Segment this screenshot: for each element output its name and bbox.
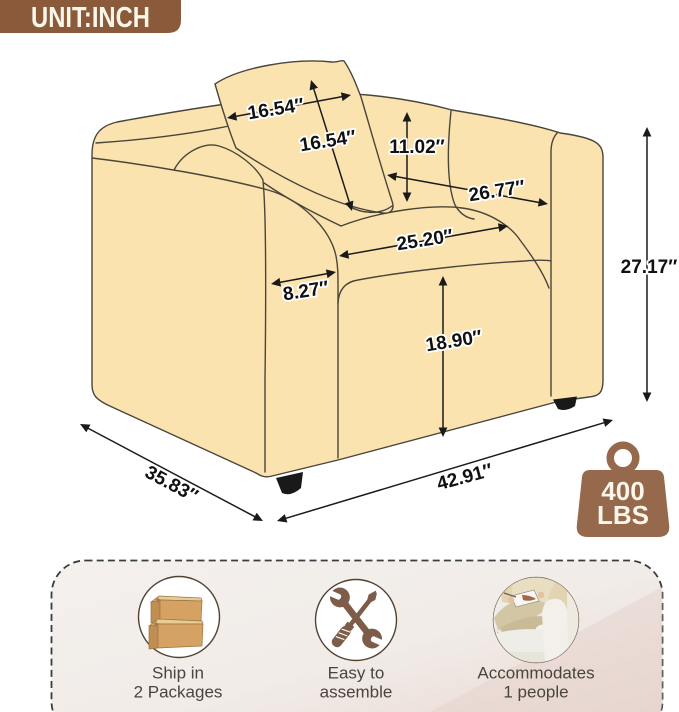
svg-text:Easy to: Easy to [328, 663, 385, 682]
svg-text:Ship in: Ship in [152, 663, 204, 682]
svg-text:2 Packages: 2 Packages [134, 682, 223, 701]
svg-text:11.02″: 11.02″ [389, 137, 445, 158]
svg-text:1 people: 1 people [503, 682, 568, 701]
svg-text:assemble: assemble [320, 682, 393, 701]
svg-text:27.17″: 27.17″ [621, 257, 678, 278]
svg-text:LBS: LBS [597, 500, 649, 530]
svg-text:35.83″: 35.83″ [141, 462, 201, 507]
svg-text:UNIT:INCH: UNIT:INCH [31, 2, 150, 34]
svg-text:Accommodates: Accommodates [477, 663, 594, 682]
